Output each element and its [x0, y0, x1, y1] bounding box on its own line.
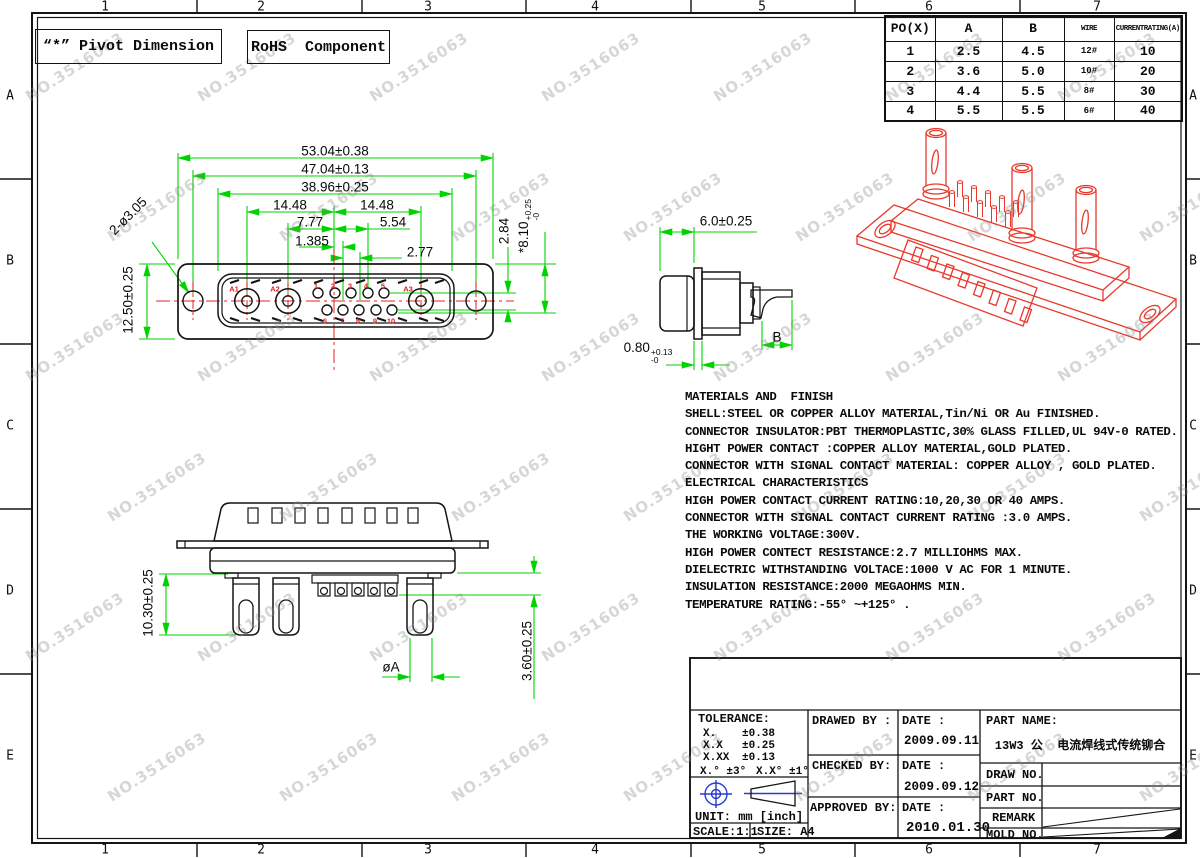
table-header: WIRE	[1064, 16, 1114, 41]
pin-label: 5	[381, 282, 385, 291]
pin-label: 6	[323, 317, 327, 326]
table-cell: 3.6	[935, 61, 1002, 81]
pin-label: 2	[331, 282, 335, 291]
ruler-row: E	[6, 749, 14, 764]
dim-overall-width: 53.04±0.38	[301, 144, 368, 159]
table-cell: 3	[885, 81, 935, 101]
pin-label: 8	[356, 317, 360, 326]
tolerance-lower: -0	[651, 356, 673, 364]
table-cell: 2	[885, 61, 935, 81]
pin-label: 4	[364, 282, 368, 291]
ruler-col: 4	[591, 843, 599, 858]
dim-depth: 6.0±0.25	[700, 214, 752, 229]
dim-insert-width: 38.96±0.25	[301, 180, 368, 195]
mold-no-label: MOLD NO.	[986, 828, 1044, 842]
rohs-component-note: RoHS Component	[247, 30, 390, 64]
table-header: A	[935, 16, 1002, 41]
drawed-by-label: DRAWED BY :	[812, 714, 891, 728]
ruler-col: 6	[925, 0, 933, 15]
dim-flange-thickness: 0.80+0.13-0	[624, 340, 673, 364]
dim-value: *8.10	[516, 221, 531, 253]
ruler-col: 5	[758, 0, 766, 15]
date-label: DATE :	[902, 714, 945, 728]
ruler-col: 7	[1093, 0, 1101, 15]
table-cell: 6#	[1064, 101, 1114, 121]
checked-date: 2009.09.12	[904, 780, 979, 794]
ruler-col: 2	[257, 843, 265, 858]
ruler-row: B	[6, 254, 14, 269]
tolerance-title: TOLERANCE:	[698, 712, 770, 726]
draw-no-label: DRAW NO.	[986, 768, 1044, 782]
note-line: CONNECTOR WITH SIGNAL CONTACT MATERIAL: …	[685, 458, 1178, 475]
ruler-row: B	[1189, 254, 1197, 269]
note-line: ELECTRICAL CHARACTERISTICS	[685, 475, 1178, 492]
table-cell: 5.5	[1002, 101, 1064, 121]
note-line: THE WORKING VOLTAGE:300V.	[685, 527, 1178, 544]
approved-by-label: APPROVED BY:	[810, 801, 896, 815]
ruler-col: 2	[257, 0, 265, 15]
note-line: SHELL:STEEL OR COPPER ALLOY MATERIAL,Tin…	[685, 406, 1178, 423]
table-cell: 2.5	[935, 41, 1002, 61]
table-cell: 10	[1114, 41, 1182, 61]
ruler-row: D	[6, 584, 14, 599]
ruler-col: 1	[101, 843, 109, 858]
dim-shell-height: 12.50±0.25	[121, 266, 136, 333]
contact-label: A2	[270, 285, 280, 294]
dim-left-pitch: 14.48	[273, 198, 307, 213]
tolerance-label: X.XX	[703, 752, 729, 764]
tolerance-value: ±0.25	[742, 740, 775, 752]
ruler-row: A	[6, 89, 14, 104]
unit-label: UNIT: mm [inch]	[695, 810, 803, 824]
part-name-label: PART NAME:	[986, 714, 1058, 728]
date-label: DATE :	[902, 759, 945, 773]
drawing-sheet: NO.3516063NO.3516063NO.3516063NO.3516063…	[0, 0, 1200, 857]
dim-value: 0.80	[624, 340, 650, 355]
checked-by-label: CHECKED BY:	[812, 759, 891, 773]
dim-pin-pitch: 2.77	[407, 245, 433, 260]
contact-label: A1	[229, 285, 239, 294]
ruler-col: 6	[925, 843, 933, 858]
table-cell: 10#	[1064, 61, 1114, 81]
ruler-row: E	[1189, 749, 1197, 764]
part-name-value: 13W3 公 电流焊线式传统铆合	[995, 736, 1165, 753]
dim-comb-height: 3.60±0.25	[520, 621, 535, 681]
dim-a2-center: 7.77	[297, 215, 323, 230]
part-no-label: PART NO.	[986, 791, 1044, 805]
remark-label: REMARK	[992, 811, 1035, 825]
note-line: DIELECTRIC WITHSTANDING VOLTACE:1000 V A…	[685, 562, 1178, 579]
dim-row-gap: 2.84	[497, 218, 512, 244]
pin-label: 3	[348, 282, 352, 291]
ruler-col: 1	[101, 0, 109, 15]
dim-row-offset: 1.385	[295, 234, 329, 249]
contact-label: A3	[403, 285, 413, 294]
scale-label: SCALE:1:1	[693, 825, 758, 839]
note-line: TEMPERATURE RATING:-55° ~+125° .	[685, 597, 1178, 614]
table-header: PO(X)	[885, 16, 935, 41]
table-cell: 12#	[1064, 41, 1114, 61]
approved-date: 2010.01.30	[906, 820, 990, 836]
pivot-dimension-note: “*” Pivot Dimension	[35, 29, 222, 64]
tolerance-label: X.X	[703, 740, 723, 752]
note-line: INSULATION RESISTANCE:2000 MEGAOHMS MIN.	[685, 579, 1178, 596]
ruler-row: D	[1189, 584, 1197, 599]
note-line: CONNECTOR INSULATOR:PBT THERMOPLASTIC,30…	[685, 424, 1178, 441]
tolerance-lower: -0	[532, 199, 540, 221]
dim-mount-span: 47.04±0.13	[301, 162, 368, 177]
table-cell: 40	[1114, 101, 1182, 121]
dim-pin-length: 10.30±0.25	[141, 569, 156, 636]
dim-tail-ref: B	[772, 330, 781, 345]
dim-insert-height: *8.10+0.25-0	[516, 199, 540, 253]
dim-right-pitch: 14.48	[360, 198, 394, 213]
note-line: MATERIALS AND FINISH	[685, 389, 1178, 406]
table-header: B	[1002, 16, 1064, 41]
iso-view	[857, 129, 1176, 341]
table-cell: 5.5	[1002, 81, 1064, 101]
tolerance-angle: X.° ±3°	[700, 766, 746, 778]
table-cell: 4	[885, 101, 935, 121]
ruler-row: C	[6, 419, 14, 434]
pin-label: 1	[314, 282, 318, 291]
drawed-date: 2009.09.11	[904, 734, 979, 748]
table-cell: 5.0	[1002, 61, 1064, 81]
dim-pin-span: 5.54	[380, 215, 406, 230]
table-header: CURRENTRATING(A)	[1114, 16, 1182, 41]
pin-label: 7	[340, 317, 344, 326]
size-label: SIZE: A4	[757, 825, 815, 839]
ruler-col: 5	[758, 843, 766, 858]
note-line: CONNECTOR WITH SIGNAL CONTACT CURRENT RA…	[685, 510, 1178, 527]
pin-label: 10	[387, 317, 395, 326]
table-cell: 8#	[1064, 81, 1114, 101]
ruler-col: 7	[1093, 843, 1101, 858]
projection-symbol-icon	[700, 780, 802, 808]
ruler-col: 3	[424, 843, 432, 858]
ruler-col: 4	[591, 0, 599, 15]
ruler-col: 3	[424, 0, 432, 15]
ruler-row: C	[1189, 419, 1197, 434]
table-cell: 30	[1114, 81, 1182, 101]
dim-pin-diameter: øA	[382, 660, 399, 675]
tolerance-angle: X.X° ±1°	[756, 766, 809, 778]
table-cell: 1	[885, 41, 935, 61]
tolerance-label: X.	[703, 728, 716, 740]
note-line: HIGH POWER CONTACT CURRENT RATING:10,20,…	[685, 493, 1178, 510]
tolerance-value: ±0.38	[742, 728, 775, 740]
table-cell: 4.5	[1002, 41, 1064, 61]
tolerance-value: ±0.13	[742, 752, 775, 764]
pin-label: 9	[373, 317, 377, 326]
current-rating-table: PO(X) A B WIRE CURRENTRATING(A) 1 2.5 4.…	[884, 15, 1183, 122]
materials-notes: MATERIALS AND FINISH SHELL:STEEL OR COPP…	[685, 389, 1178, 614]
table-cell: 5.5	[935, 101, 1002, 121]
table-cell: 4.4	[935, 81, 1002, 101]
note-line: HIGH POWER CONTECT RESISTANCE:2.7 MILLIO…	[685, 545, 1178, 562]
ruler-row: A	[1189, 89, 1197, 104]
table-cell: 20	[1114, 61, 1182, 81]
note-line: HIGHT POWER CONTACT :COPPER ALLOY MATERI…	[685, 441, 1178, 458]
date-label: DATE :	[902, 801, 945, 815]
